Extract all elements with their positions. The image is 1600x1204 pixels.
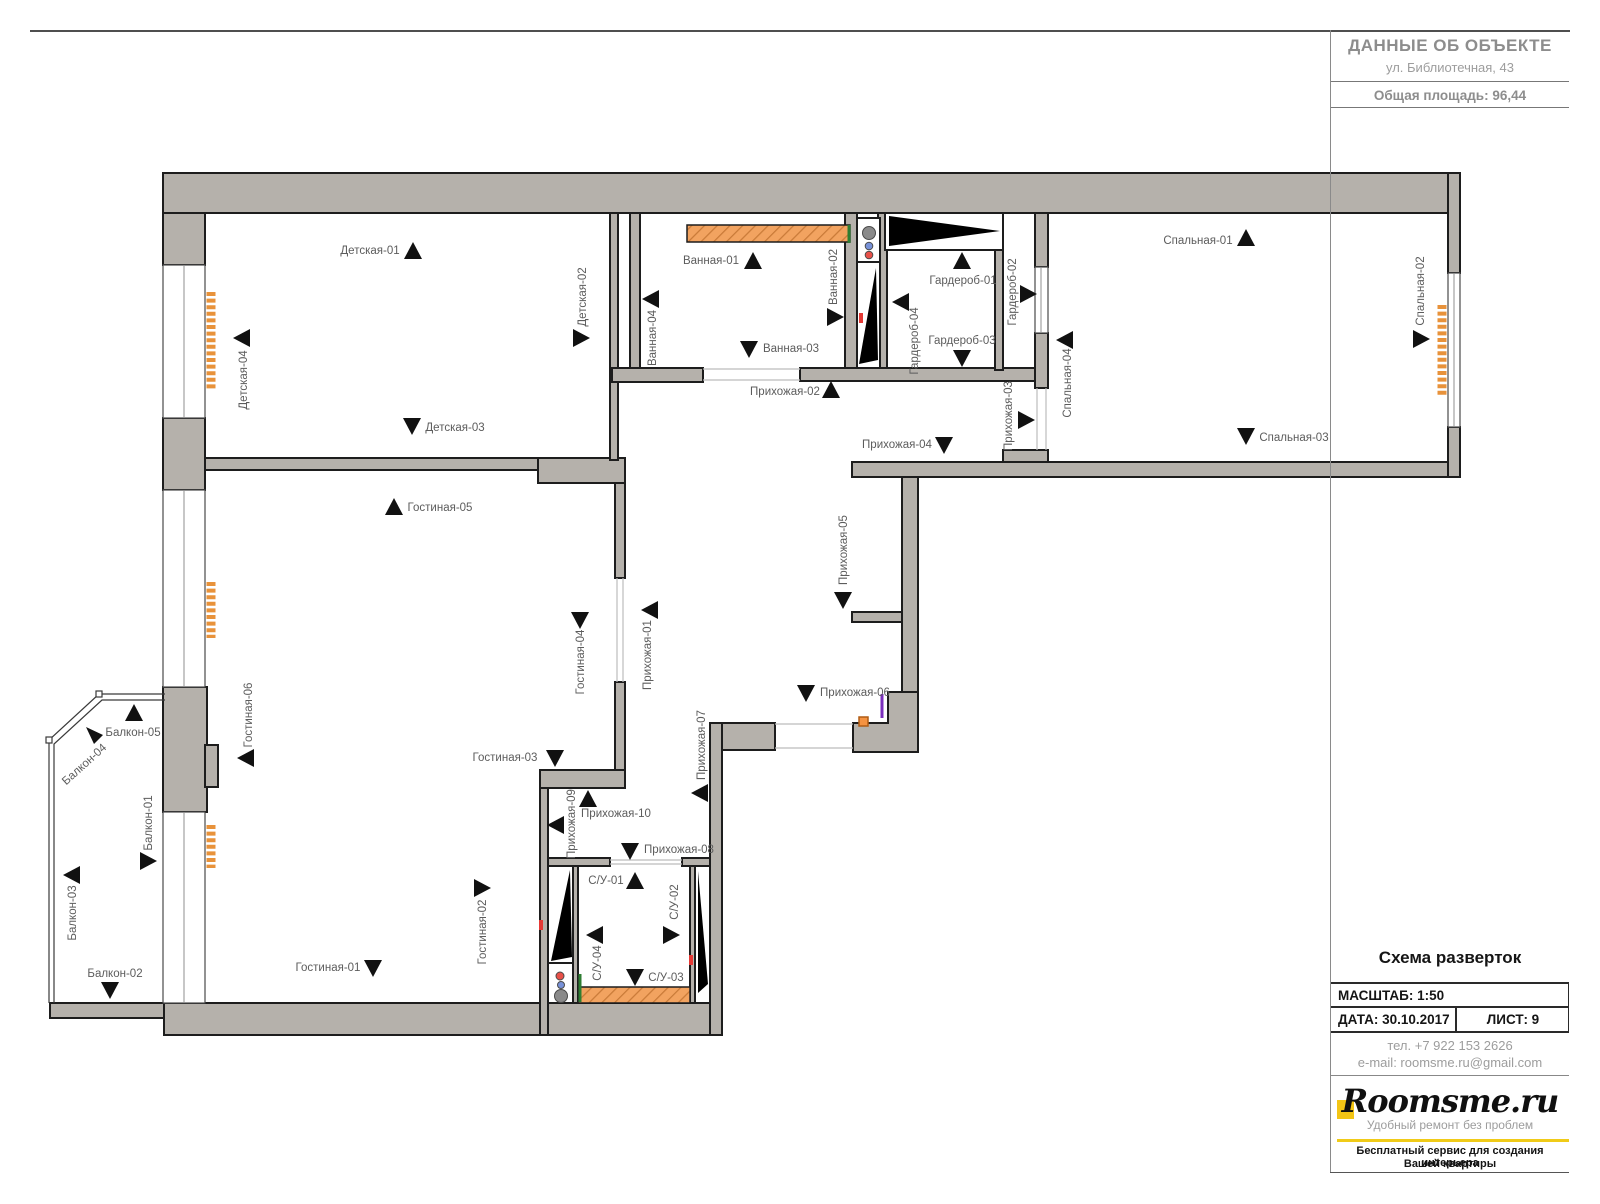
elevation-label-Прихожая-01: Прихожая-01 [642,620,654,690]
elevation-label-Спальная-03: Спальная-03 [1259,432,1328,444]
elevation-label-Гардероб-01: Гардероб-01 [929,275,996,287]
elevation-arrow-Прихожая-04 [935,437,953,454]
elevation-arrow-Ванная-03 [740,341,758,358]
scheme-title: Схема разверток [1331,948,1569,968]
info-column-rule [1330,30,1331,1173]
elevation-label-Ванная-04: Ванная-04 [647,309,659,366]
riser-red-bottom [556,972,564,980]
opening-lines [610,369,1046,864]
logo-yellow-rule [1337,1139,1569,1142]
elevation-arrow-Гардероб-04 [892,293,909,311]
elevation-label-С/У-02: С/У-02 [669,884,681,919]
riser-blue-top [865,242,873,250]
elevation-label-Детская-01: Детская-01 [340,245,399,257]
elevation-arrow-Балкон-03 [63,866,80,884]
elevation-label-Балкон-05: Балкон-05 [105,727,160,739]
column-bottom-rule [1330,1172,1569,1173]
elevation-label-Прихожая-06: Прихожая-06 [820,687,890,699]
elevation-arrow-Гостиная-05 [385,498,403,515]
elevation-arrow-Гостиная-03 [546,750,564,767]
elevation-arrow-Балкон-02 [101,982,119,999]
elevation-arrow-Прихожая-03 [1018,411,1035,429]
elevation-arrow-Гостиная-02 [474,879,491,897]
elevation-label-С/У-01: С/У-01 [588,875,623,887]
elevation-arrow-Спальная-03 [1237,428,1255,445]
elevation-label-Прихожая-10: Прихожая-10 [581,808,651,820]
elevation-arrow-С/У-02 [663,926,680,944]
elevation-arrow-Ванная-01 [744,252,762,269]
logo-rule-top [1331,1075,1569,1076]
elevation-label-Ванная-01: Ванная-01 [683,255,739,267]
elevation-arrow-Ванная-04 [642,290,659,308]
scheme-scale: МАСШТАБ: 1:50 [1338,988,1444,1003]
elevation-label-Ванная-02: Ванная-02 [828,249,840,305]
elevation-arrow-Балкон-05 [125,704,143,721]
elevation-label-Прихожая-07: Прихожая-07 [696,710,708,780]
title-rule-2 [1331,107,1569,108]
elevation-arrow-Гардероб-03 [953,350,971,367]
elevation-arrow-Балкон-01 [140,852,157,870]
scheme-sheet: ЛИСТ: 9 [1457,1012,1569,1027]
floor-plan-page: { "title_block": { "title": "ДАННЫЕ ОБ О… [0,0,1600,1204]
elevation-label-С/У-04: С/У-04 [592,945,604,981]
elevation-label-Балкон-04: Балкон-04 [60,741,109,787]
riser-blue-bottom [558,982,565,989]
walls [50,173,1460,1035]
logo-wordmark: Roomsme.ru [1331,1082,1569,1120]
elevation-label-Детская-04: Детская-04 [238,350,250,410]
elevation-label-Спальная-01: Спальная-01 [1163,235,1232,247]
elevation-label-Прихожая-04: Прихожая-04 [862,439,933,451]
riser-gray-bottom [555,990,568,1003]
elevation-label-Прихожая-09: Прихожая-09 [566,789,578,859]
elevation-label-Ванная-03: Ванная-03 [763,343,819,355]
elevation-markers: Детская-01Детская-02Детская-03Детская-04… [60,229,1430,999]
elevation-arrow-Прихожая-02 [822,381,840,398]
elevation-arrow-Детская-02 [573,329,590,347]
elevation-arrow-Прихожая-01 [641,601,658,619]
object-address: ул. Библиотечная, 43 [1331,60,1569,75]
elevation-label-Спальная-04: Спальная-04 [1062,348,1074,418]
elevation-arrow-С/У-03 [626,969,644,986]
page-top-rule [30,30,1570,32]
elevation-label-Балкон-01: Балкон-01 [143,795,155,850]
elevation-arrow-Гостиная-06 [237,749,254,767]
stamp-rule-mid [1331,1006,1569,1008]
elevation-arrow-Спальная-01 [1237,229,1255,246]
object-area: Общая площадь: 96,44 [1331,88,1569,103]
elevation-label-Прихожая-03: Прихожая-03 [1003,381,1015,451]
elevation-label-Гардероб-04: Гардероб-04 [909,307,921,375]
elevation-arrow-Прихожая-08 [621,843,639,860]
riser-gray-top [863,227,876,240]
stamp-rule-bottom [1331,1031,1569,1033]
elevation-label-Детская-02: Детская-02 [577,267,589,326]
stamp-rule-top [1331,982,1569,984]
title-rule-1 [1331,81,1569,82]
elevation-arrow-Гостиная-01 [364,960,382,977]
elevation-arrow-Спальная-04 [1056,331,1073,349]
elevation-arrow-Прихожая-07 [691,784,708,802]
bathtub-bathroom [687,225,850,242]
elevation-label-Гостиная-01: Гостиная-01 [296,962,361,974]
elevation-arrow-Детская-03 [403,418,421,435]
bathtub-wc [578,987,690,1003]
elevation-arrow-Детская-04 [233,329,250,347]
elevation-label-Гостиная-03: Гостиная-03 [473,752,538,764]
elevation-label-Прихожая-08: Прихожая-08 [644,844,714,856]
elevation-label-Гостиная-05: Гостиная-05 [408,502,473,514]
elevation-label-Прихожая-02: Прихожая-02 [750,386,820,398]
elevation-arrow-Прихожая-06 [797,685,815,702]
elevation-arrow-Прихожая-09 [547,816,564,834]
contact-email: e-mail: roomsme.ru@gmail.com [1331,1055,1569,1070]
elevation-arrow-Ванная-02 [827,308,844,326]
logo-tagline: Удобный ремонт без проблем [1331,1118,1569,1132]
elevation-label-Спальная-02: Спальная-02 [1415,256,1427,325]
elevation-label-Балкон-02: Балкон-02 [87,968,142,980]
object-data-title: ДАННЫЕ ОБ ОБЪЕКТЕ [1331,36,1569,56]
elevation-label-Гостиная-02: Гостиная-02 [477,900,489,965]
elevation-label-С/У-03: С/У-03 [648,972,683,984]
elevation-arrow-Гостиная-04 [571,612,589,629]
elevation-label-Гостиная-06: Гостиная-06 [243,683,255,748]
riser-red-top [865,251,873,259]
elevation-arrow-Гардероб-01 [953,252,971,269]
elevation-arrow-С/У-04 [586,926,603,944]
elevation-label-Балкон-03: Балкон-03 [67,885,79,940]
elevation-arrow-Прихожая-10 [579,790,597,807]
elevation-label-Детская-03: Детская-03 [425,422,484,434]
scheme-date: ДАТА: 30.10.2017 [1338,1012,1450,1027]
elevation-arrow-Спальная-02 [1413,330,1430,348]
elevation-arrow-Детская-01 [404,242,422,259]
elevation-label-Гардероб-02: Гардероб-02 [1007,258,1019,325]
contact-phone: тел. +7 922 153 2626 [1331,1038,1569,1053]
elevation-label-Прихожая-05: Прихожая-05 [838,515,850,585]
elevation-arrow-С/У-01 [626,872,644,889]
stamp-right-border [1568,982,1569,1033]
elevation-arrow-Прихожая-05 [834,592,852,609]
elevation-label-Гардероб-03: Гардероб-03 [928,335,995,347]
logo-subtitle-2: Вашей квартиры [1331,1158,1569,1170]
elevation-label-Гостиная-04: Гостиная-04 [575,629,587,694]
